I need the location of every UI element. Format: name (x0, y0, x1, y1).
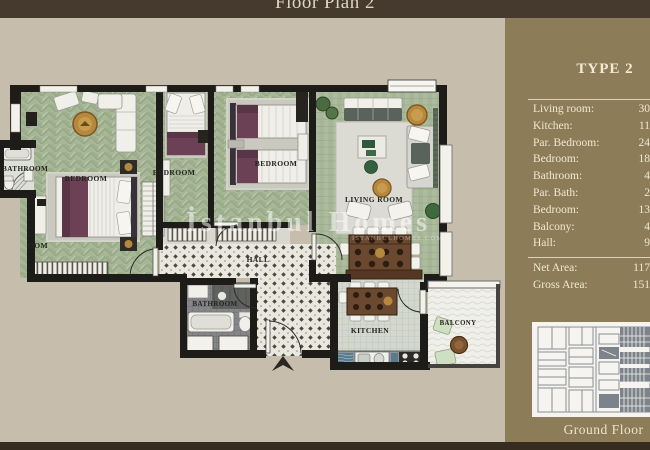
svg-text:OOM: OOM (28, 241, 48, 250)
svg-text:BALCONY: BALCONY (440, 320, 477, 327)
svg-text:KITCHEN: KITCHEN (351, 326, 389, 335)
svg-text:BEDROOM: BEDROOM (255, 159, 297, 168)
svg-text:BEDROOM: BEDROOM (65, 174, 107, 183)
svg-text:BEDROOM: BEDROOM (153, 168, 195, 177)
svg-text:İstanbul Homes: İstanbul Homes (186, 207, 431, 238)
svg-text:İSTANBULHOMES.COM: İSTANBULHOMES.COM (352, 235, 443, 242)
svg-text:LIVING ROOM: LIVING ROOM (345, 195, 403, 204)
svg-text:BATHROOM: BATHROOM (192, 300, 237, 308)
svg-text:HALL: HALL (247, 255, 270, 264)
svg-text:BATHROOM: BATHROOM (2, 165, 48, 173)
